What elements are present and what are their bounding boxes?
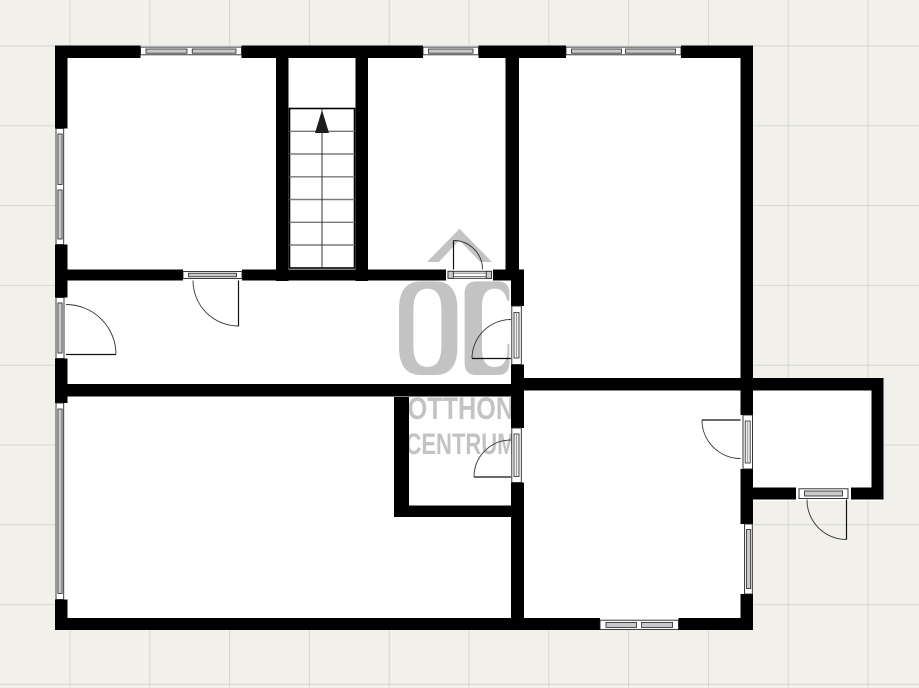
svg-text:CENTRUM: CENTRUM: [406, 428, 516, 461]
